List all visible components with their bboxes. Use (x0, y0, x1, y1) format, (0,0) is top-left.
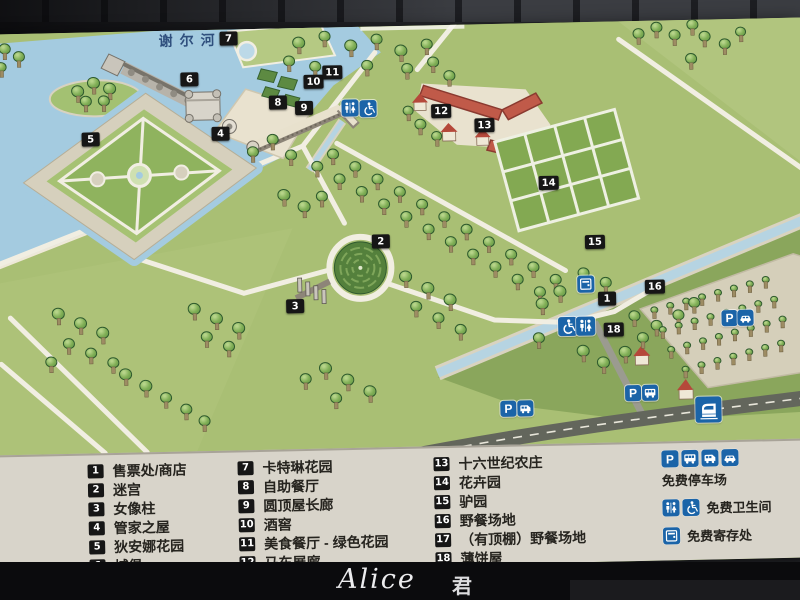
legend-number: 14 (434, 476, 450, 490)
legend-item-14: 14花卉园 (434, 473, 585, 490)
rv-icon (701, 449, 718, 466)
legend-column-3: 13十六世纪农庄14花卉园15驴园16野餐场地17（有顶棚）野餐场地18薄饼屋 (433, 454, 586, 566)
legend-label: 十六世纪农庄 (458, 452, 542, 474)
legend-number: 13 (433, 457, 449, 471)
facility-row: P免费停车场 (661, 448, 771, 489)
legend-column-1: 1售票处/商店2迷宫3女像柱4管家之屋5狄安娜花园6城堡 (87, 463, 188, 574)
legend-label: 美食餐厅 - 绿色花园 (264, 531, 389, 554)
photo-of-park-map: 谢尔河 PPP 1234567891011121314151618 1售票处/商… (0, 0, 800, 600)
legend-label: 卡特琳花园 (262, 456, 332, 477)
legend-number: 16 (435, 514, 451, 528)
legend-number: 10 (239, 518, 255, 532)
bus-icon (681, 450, 698, 467)
legend-label: 狄安娜花园 (114, 536, 184, 557)
legend-item-13: 13十六世纪农庄 (433, 454, 584, 471)
facility-label: 免费寄存处 (687, 525, 752, 545)
legend-item-16: 16野餐场地 (435, 511, 586, 528)
desk-surface: Alice 君 (0, 562, 800, 600)
watermark-cjk: 君 (452, 570, 472, 599)
facility-row: 免费卫生间 (662, 496, 771, 517)
legend-number: 11 (239, 537, 255, 551)
maze (334, 241, 387, 294)
legend-number: 17 (435, 533, 451, 547)
legend-label: 酒窖 (264, 514, 292, 535)
legend-item-11: 11美食餐厅 - 绿色花园 (239, 534, 389, 551)
legend-item-1: 1售票处/商店 (87, 463, 186, 479)
legend-label: 花卉园 (459, 472, 501, 493)
facility-icons: P (661, 449, 738, 468)
legend-column-2: 7卡特琳花园8自助餐厅9圆顶屋长廊10酒窖11美食餐厅 - 绿色花园12马车展廊 (237, 458, 389, 570)
legend-number: 1 (87, 464, 103, 478)
legend-label: 女像柱 (113, 498, 155, 519)
legend-number: 7 (237, 461, 253, 475)
legend-number: 5 (89, 540, 105, 554)
legend-label: 管家之屋 (114, 517, 170, 538)
legend-number: 15 (434, 495, 450, 509)
facility-label: 免费停车场 (662, 469, 727, 489)
legend-label: 驴园 (459, 491, 487, 512)
facility-label: 免费卫生间 (706, 496, 771, 516)
legend-label: （有顶棚）野餐场地 (460, 527, 586, 550)
legend-label: 圆顶屋长廊 (263, 494, 333, 515)
facility-icons (662, 499, 699, 517)
locker-icon (663, 527, 680, 544)
legend-item-10: 10酒窖 (239, 515, 389, 532)
legend-item-17: 17（有顶棚）野餐场地 (435, 530, 586, 547)
legend-number: 3 (88, 502, 104, 516)
legend-label: 迷宫 (113, 479, 141, 500)
legend-item-3: 3女像柱 (88, 501, 187, 517)
legend-number: 4 (89, 521, 105, 535)
map-legend: 1售票处/商店2迷宫3女像柱4管家之屋5狄安娜花园6城堡 7卡特琳花园8自助餐厅… (0, 438, 800, 574)
watermark-script: Alice (338, 564, 416, 595)
toilet-icon (662, 499, 679, 516)
legend-label: 售票处/商店 (112, 460, 186, 482)
parking-icon: P (661, 450, 678, 467)
facility-icons (663, 527, 680, 544)
legend-facilities: P免费停车场免费卫生间免费寄存处 (661, 448, 772, 545)
legend-item-15: 15驴园 (434, 492, 585, 509)
legend-item-7: 7卡特琳花园 (237, 458, 387, 475)
legend-label: 野餐场地 (460, 510, 516, 531)
legend-number: 8 (238, 480, 254, 494)
wheelchair-icon (682, 499, 699, 516)
legend-item-8: 8自助餐厅 (238, 477, 388, 494)
legend-number: 2 (88, 483, 104, 497)
legend-item-2: 2迷宫 (88, 482, 187, 498)
legend-item-9: 9圆顶屋长廊 (238, 496, 388, 513)
car-icon (721, 449, 738, 466)
legend-item-4: 4管家之屋 (89, 519, 188, 535)
legend-number: 9 (238, 499, 254, 513)
legend-label: 自助餐厅 (263, 476, 319, 497)
park-map-paper: 谢尔河 PPP 1234567891011121314151618 1售票处/商… (0, 18, 800, 575)
river-label: 谢尔河 (158, 30, 221, 51)
facility-row: 免费寄存处 (663, 524, 772, 545)
legend-item-5: 5狄安娜花园 (89, 538, 188, 554)
desk-highlight (570, 580, 800, 600)
